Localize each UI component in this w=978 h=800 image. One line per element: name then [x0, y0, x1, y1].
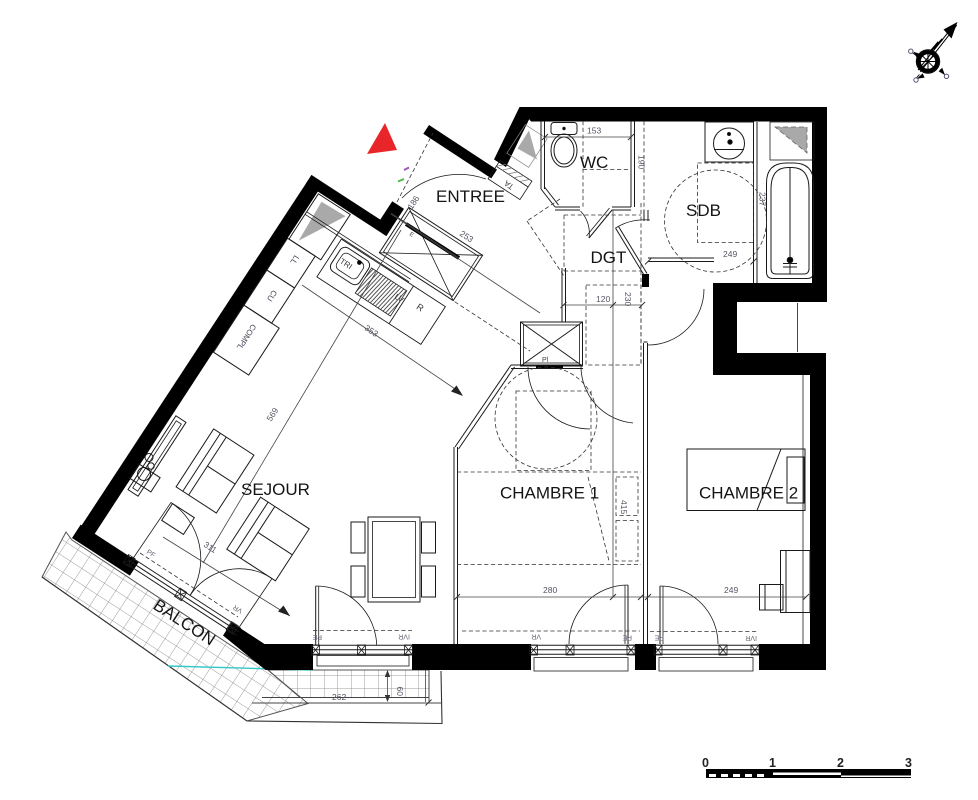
svg-text:60: 60 [395, 687, 405, 697]
svg-text:253: 253 [458, 228, 476, 244]
svg-text:280: 280 [543, 585, 557, 595]
svg-text:CHAMBRE 1: CHAMBRE 1 [500, 484, 599, 503]
svg-text:CHAMBRE 2: CHAMBRE 2 [699, 484, 798, 503]
svg-text:R: R [415, 302, 426, 314]
svg-text:PE: PE [622, 634, 632, 641]
svg-text:E: E [408, 232, 415, 239]
svg-text:WC: WC [580, 153, 608, 172]
svg-text:IVR: IVR [398, 633, 410, 640]
svg-text:415: 415 [619, 500, 629, 514]
svg-text:VR: VR [232, 603, 244, 614]
svg-text:0: 0 [702, 756, 709, 770]
svg-text:262: 262 [332, 692, 346, 702]
svg-text:249: 249 [723, 249, 737, 259]
svg-text:190: 190 [637, 155, 647, 169]
svg-text:230: 230 [623, 292, 633, 306]
svg-text:3: 3 [905, 756, 912, 770]
svg-text:249: 249 [724, 585, 738, 595]
svg-text:ENTREE: ENTREE [436, 187, 505, 206]
svg-text:CU: CU [265, 288, 279, 303]
svg-text:PE: PE [654, 634, 664, 641]
svg-text:COMPL: COMPL [235, 322, 258, 351]
svg-text:1: 1 [769, 756, 776, 770]
svg-text:237: 237 [758, 192, 768, 206]
svg-text:IVR: IVR [745, 634, 757, 641]
svg-text:SDB: SDB [686, 201, 721, 220]
svg-text:TRI: TRI [338, 257, 354, 272]
svg-text:311: 311 [202, 539, 219, 555]
svg-text:PF: PF [145, 549, 156, 560]
svg-text:DGT: DGT [591, 248, 627, 267]
svg-text:Pl: Pl [542, 357, 549, 364]
svg-text:120: 120 [596, 294, 610, 304]
svg-text:2: 2 [837, 756, 844, 770]
svg-text:VR: VR [531, 633, 541, 640]
svg-text:SEJOUR: SEJOUR [241, 480, 310, 499]
svg-text:569: 569 [264, 406, 280, 424]
svg-text:153: 153 [587, 126, 601, 136]
svg-text:PE: PE [312, 633, 322, 640]
svg-text:LL: LL [288, 254, 301, 267]
